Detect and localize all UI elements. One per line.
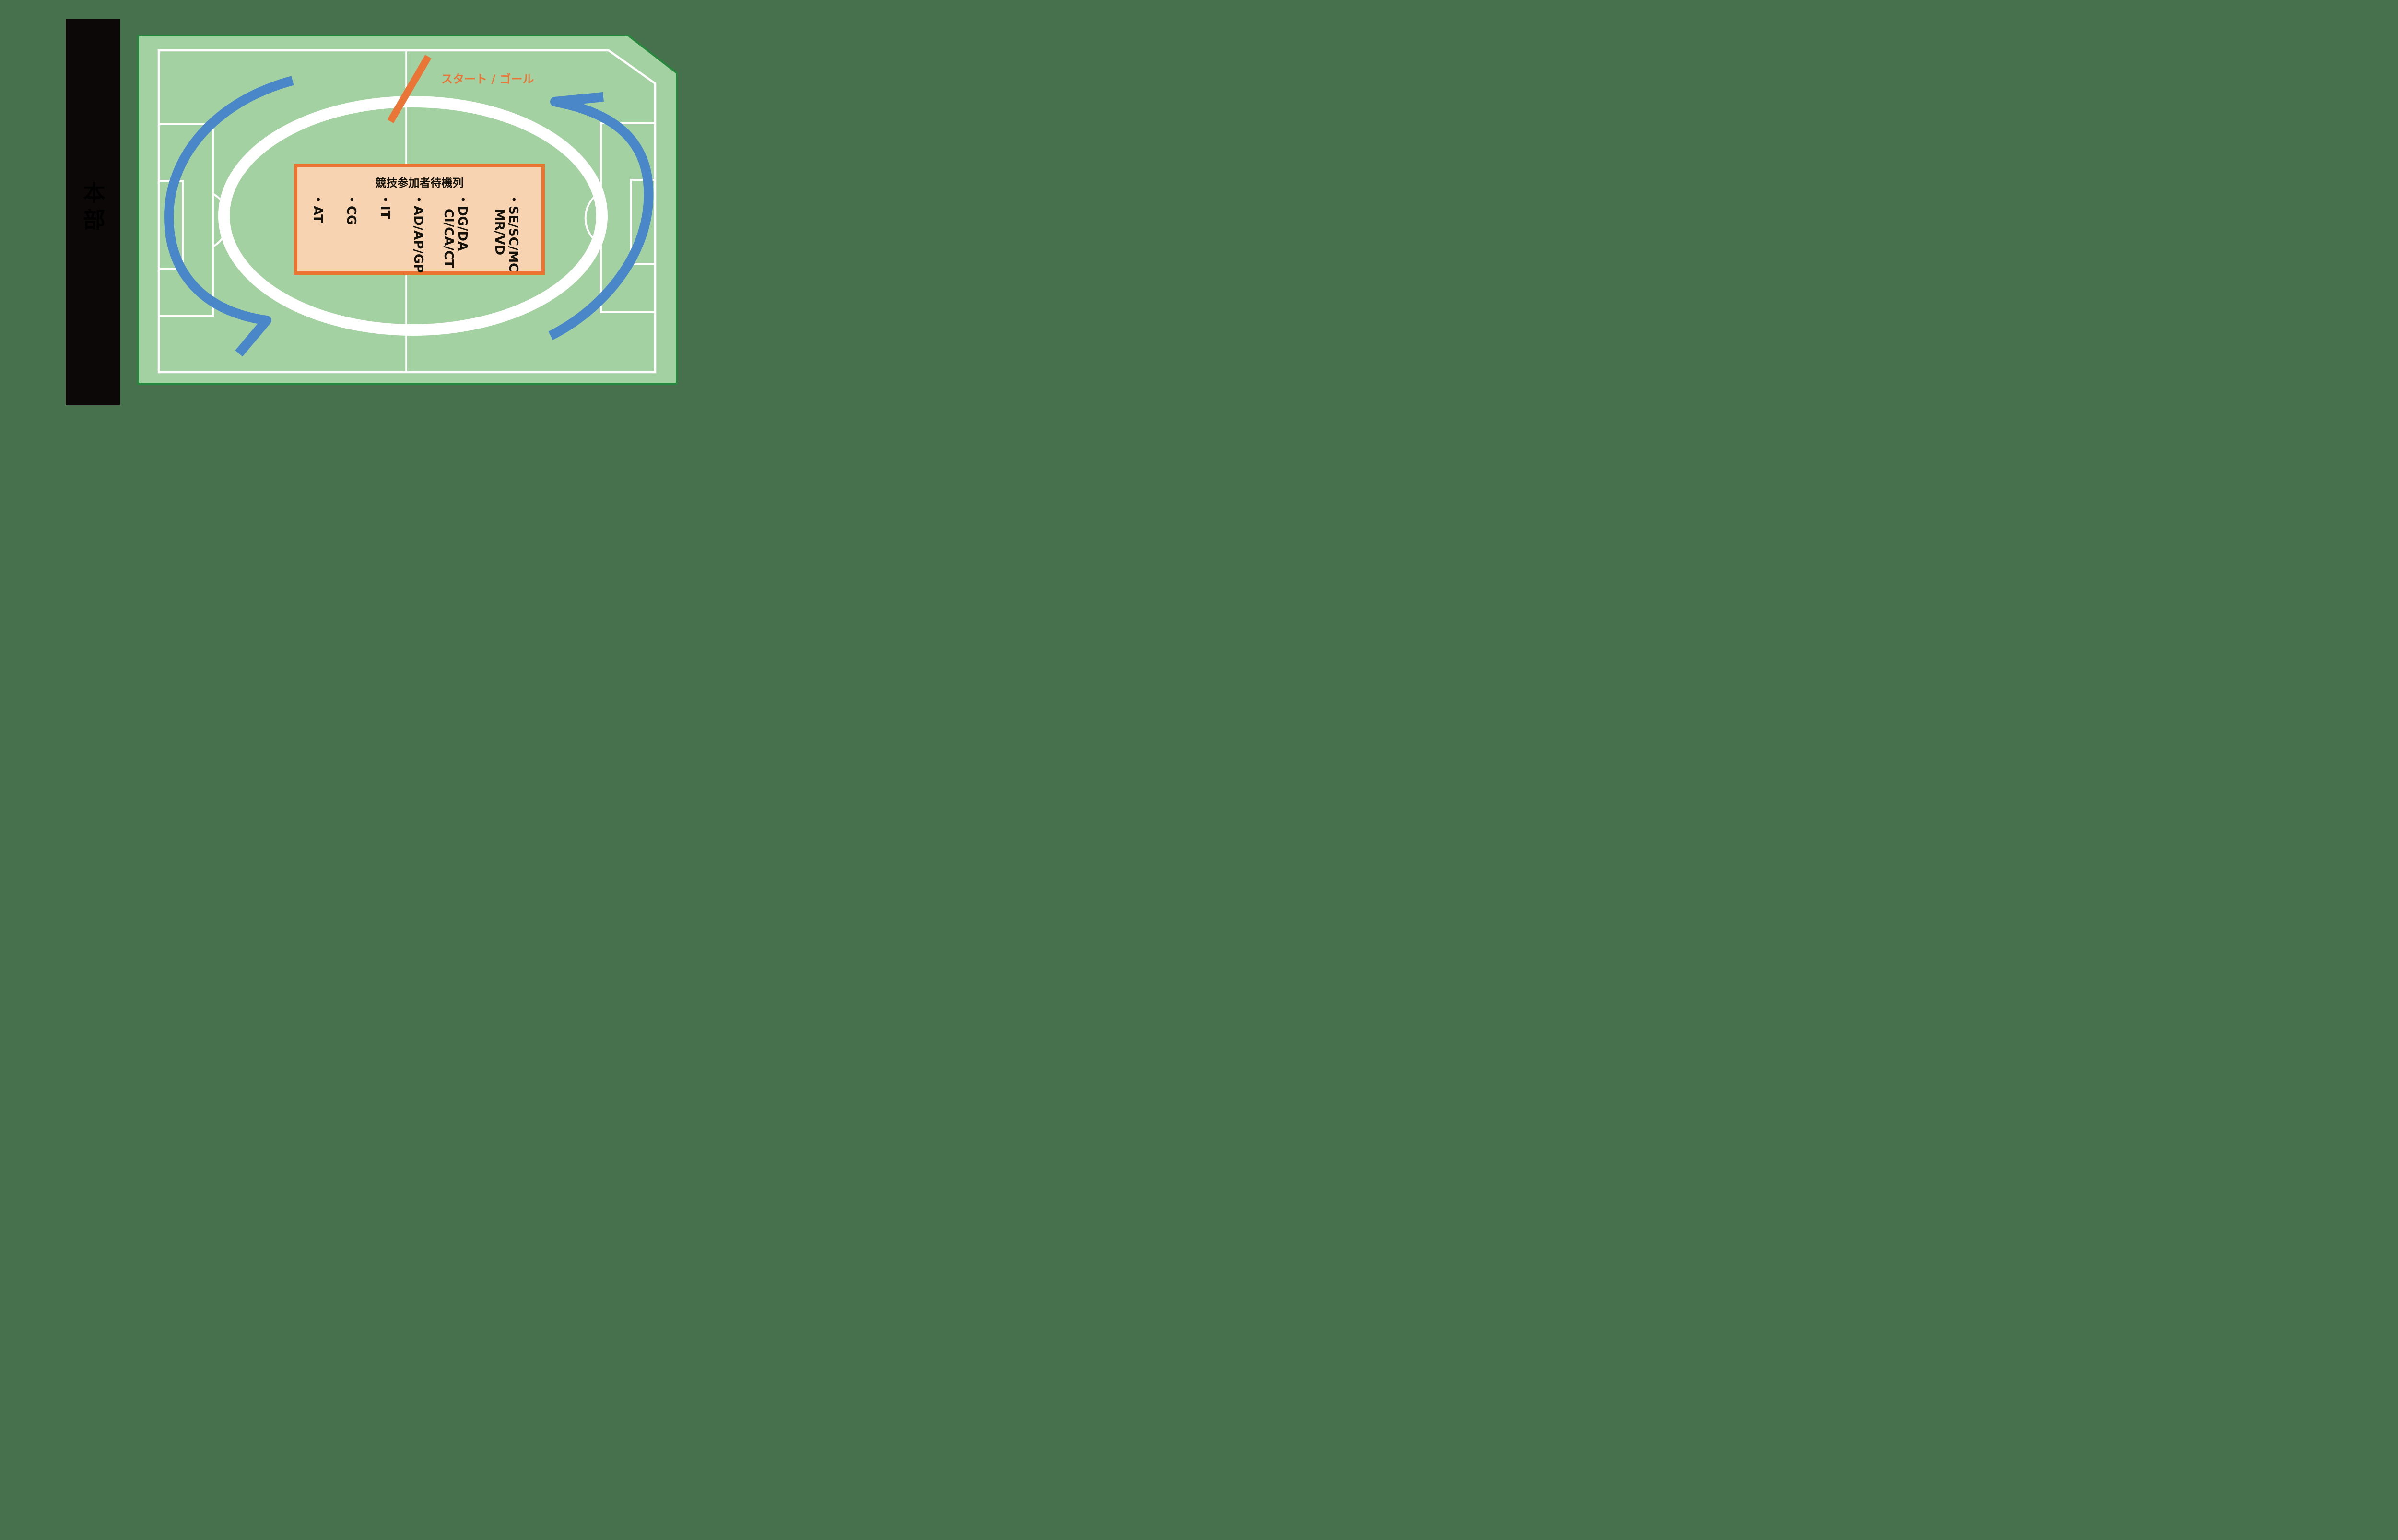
waiting-item-line1: ・AD/AP/GP bbox=[411, 193, 425, 273]
waiting-item-line2: CI/CA/CT bbox=[441, 209, 455, 268]
start-goal-label: スタート / ゴール bbox=[441, 70, 534, 86]
waiting-list-item: ・IT bbox=[377, 193, 391, 219]
headquarters-panel: 本部 bbox=[66, 19, 120, 405]
waiting-item-line1: ・CG bbox=[344, 193, 358, 225]
waiting-list-item: ・CG bbox=[344, 193, 358, 225]
waiting-item-line1: ・SE/SC/MC bbox=[506, 193, 520, 272]
waiting-item-line1: ・IT bbox=[377, 193, 391, 219]
waiting-list-item: ・SE/SC/MC MR/VD bbox=[492, 193, 520, 272]
waiting-item-line2: MR/VD bbox=[492, 209, 506, 272]
waiting-item-line1: ・AT bbox=[310, 193, 324, 223]
waiting-area-box: 競技参加者待機列 ・AT ・CG ・IT ・AD/AP/GP ・DG/DA CI… bbox=[294, 164, 545, 275]
waiting-item-line1: ・DG/DA bbox=[455, 193, 469, 268]
waiting-list-item: ・AT bbox=[310, 193, 324, 223]
venue-map: 本部 スタート / ゴール 競技参加者待機列 ・AT ・CG ・IT ・AD/A… bbox=[0, 0, 741, 419]
headquarters-label: 本部 bbox=[77, 181, 109, 405]
waiting-area-title: 競技参加者待機列 bbox=[297, 174, 541, 190]
waiting-list-item: ・DG/DA CI/CA/CT bbox=[441, 193, 469, 268]
waiting-list-item: ・AD/AP/GP bbox=[411, 193, 425, 273]
